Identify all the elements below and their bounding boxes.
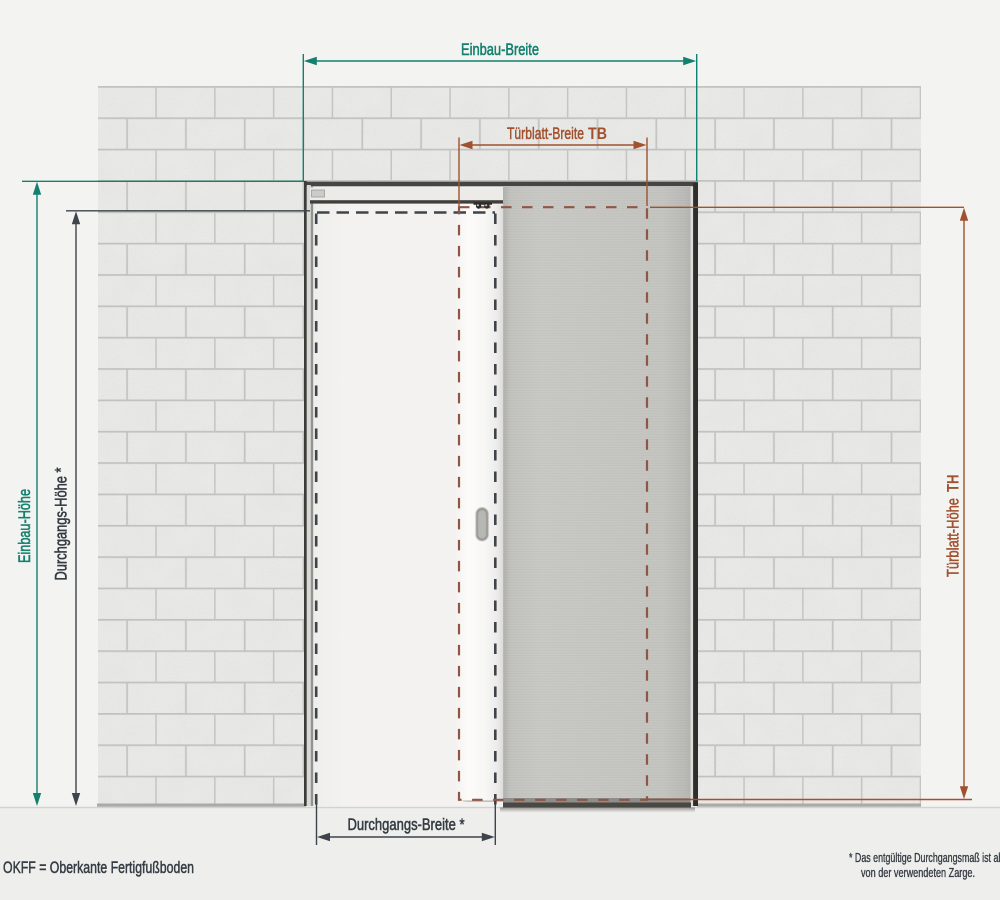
svg-text:Türblatt-Höhe: Türblatt-Höhe [944, 498, 963, 577]
svg-text:* Das entgültige Durchgangsmaß: * Das entgültige Durchgangsmaß ist abhän… [849, 850, 1000, 865]
svg-text:Einbau-Breite: Einbau-Breite [461, 40, 539, 59]
svg-text:von der verwendeten Zarge.: von der verwendeten Zarge. [861, 865, 975, 880]
svg-text:Einbau-Höhe: Einbau-Höhe [15, 489, 34, 563]
svg-text:Türblatt-Breite: Türblatt-Breite [507, 124, 584, 143]
svg-text:Durchgangs-Höhe *: Durchgangs-Höhe * [52, 467, 71, 580]
svg-text:TB: TB [588, 124, 607, 143]
svg-text:OKFF = Oberkante Fertigfußbode: OKFF = Oberkante Fertigfußboden [3, 858, 194, 877]
svg-text:Durchgangs-Breite *: Durchgangs-Breite * [348, 815, 465, 834]
svg-text:TH: TH [944, 475, 963, 493]
